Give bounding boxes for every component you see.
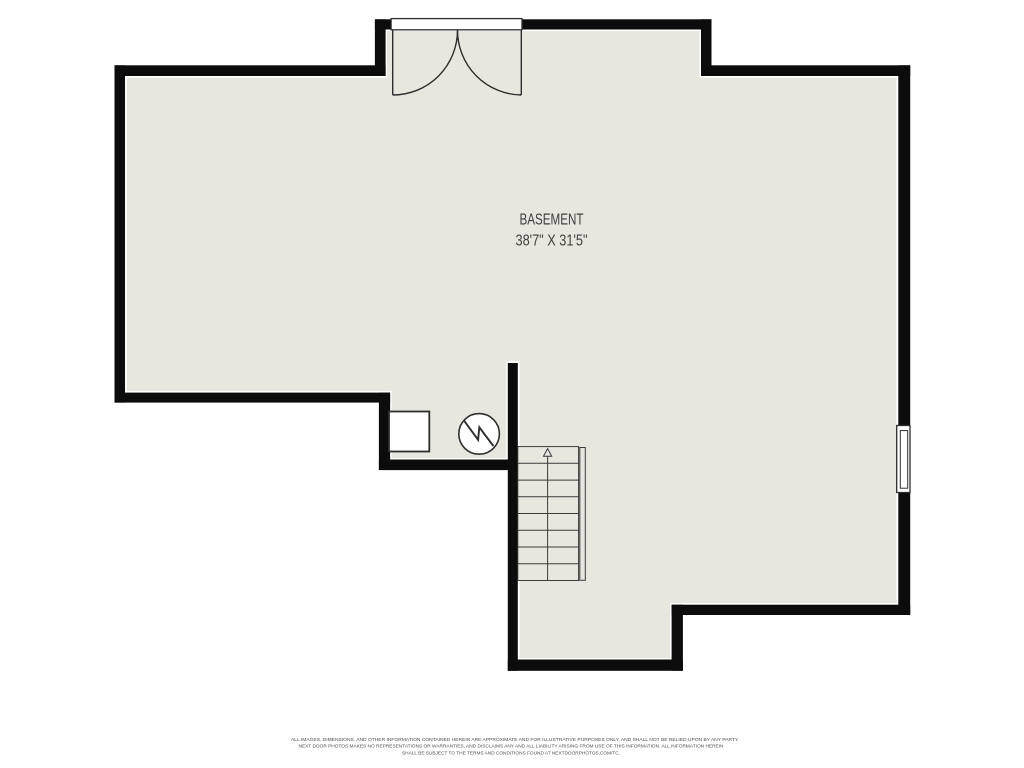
svg-text:38'7" X 31'5": 38'7" X 31'5": [516, 232, 588, 249]
svg-text:BASEMENT: BASEMENT: [520, 212, 584, 229]
svg-text:SHALL BE SUBJECT TO THE TERMS: SHALL BE SUBJECT TO THE TERMS AND CONDIT…: [402, 750, 620, 756]
svg-text:NEXT DOOR PHOTOS MAKES NO REPR: NEXT DOOR PHOTOS MAKES NO REPRESENTATION…: [299, 743, 724, 749]
svg-text:ALL IMAGES, DIMENSIONS, AND OT: ALL IMAGES, DIMENSIONS, AND OTHER INFORM…: [291, 737, 739, 743]
